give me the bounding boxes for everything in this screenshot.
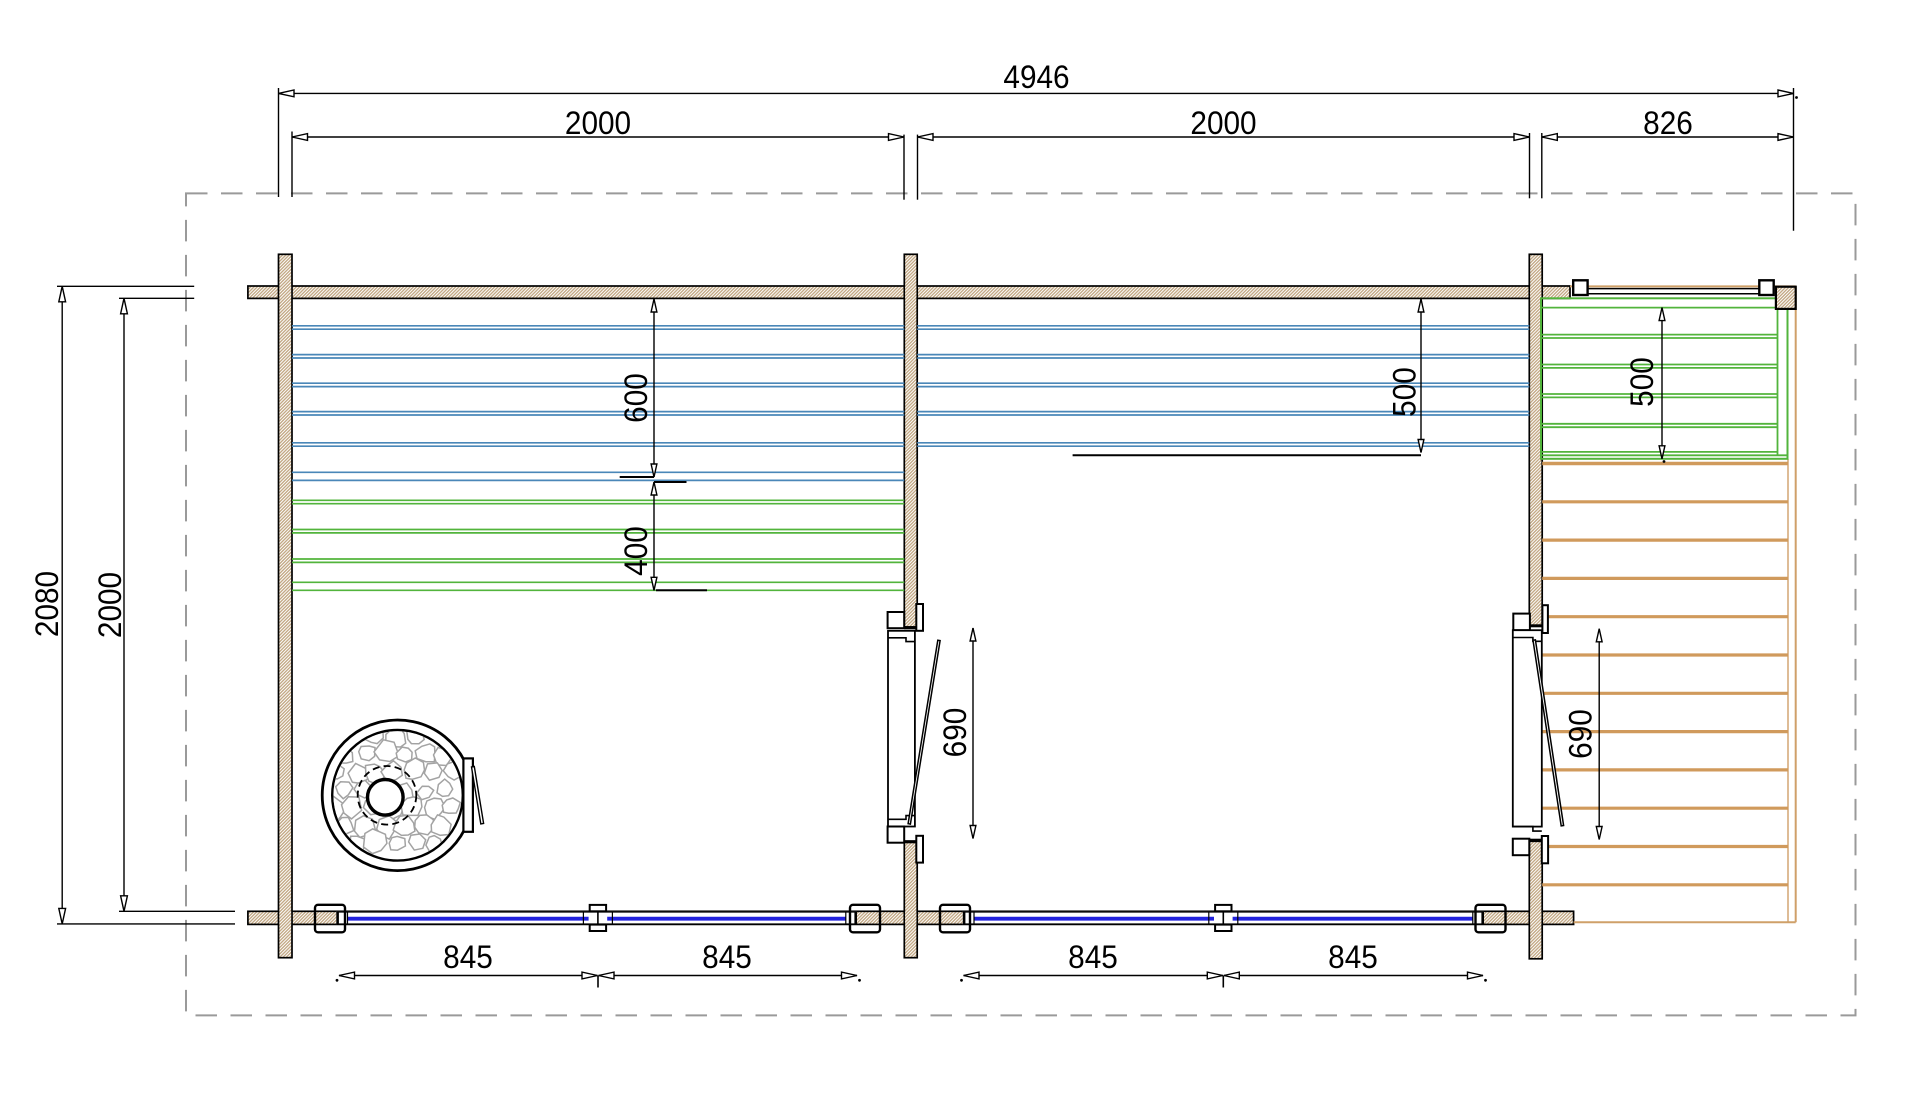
svg-text:690: 690 (937, 708, 973, 758)
svg-text:500: 500 (1387, 367, 1423, 417)
svg-text:826: 826 (1643, 105, 1693, 141)
svg-text:845: 845 (1068, 939, 1118, 975)
svg-text:845: 845 (1328, 939, 1378, 975)
svg-text:600: 600 (618, 373, 654, 423)
svg-text:500: 500 (1624, 357, 1660, 407)
svg-text:845: 845 (443, 939, 493, 975)
svg-text:400: 400 (618, 526, 654, 576)
svg-text:2000: 2000 (565, 105, 631, 141)
svg-text:2080: 2080 (29, 571, 65, 637)
svg-text:690: 690 (1563, 709, 1599, 759)
svg-text:845: 845 (702, 939, 752, 975)
svg-text:2000: 2000 (92, 572, 128, 638)
svg-text:4946: 4946 (1003, 59, 1069, 95)
svg-text:2000: 2000 (1190, 105, 1256, 141)
